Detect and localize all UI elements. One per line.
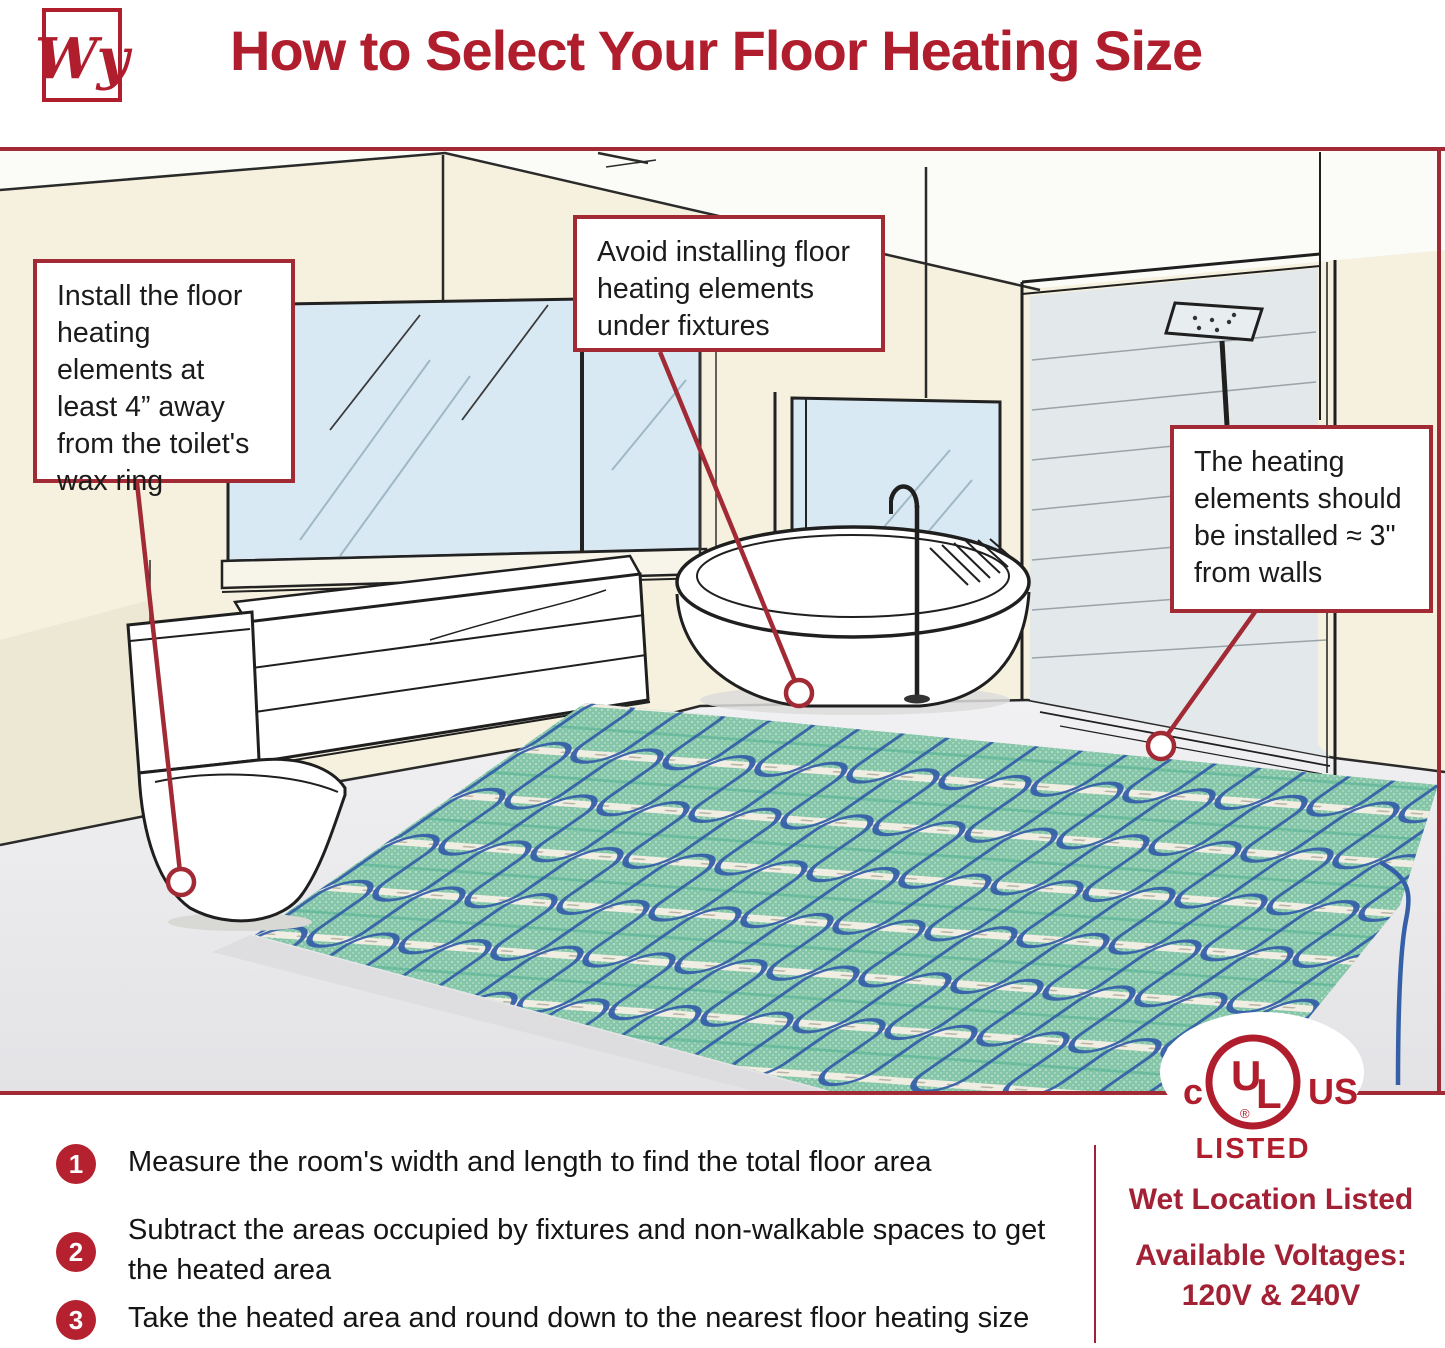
callout-avoid-fixtures: Avoid installing floor heating elements … — [573, 215, 885, 352]
voltages-label: Available Voltages: — [1100, 1239, 1442, 1273]
step-row-2: 2 Subtract the areas occupied by fixture… — [56, 1210, 1056, 1290]
wet-location-label: Wet Location Listed — [1100, 1183, 1442, 1217]
step-row-1: 1 Measure the room's width and length to… — [56, 1142, 1056, 1184]
svg-text:c: c — [1183, 1071, 1203, 1112]
step-3-number-badge: 3 — [56, 1300, 96, 1340]
ul-certification-mark: U L ® c US LISTED — [1160, 1012, 1364, 1165]
step-2-text: Subtract the areas occupied by fixtures … — [128, 1210, 1056, 1290]
step-1-number-badge: 1 — [56, 1144, 96, 1184]
leader-dot-tub — [786, 680, 812, 706]
svg-text:®: ® — [1240, 1106, 1250, 1121]
brand-logo-text: Wy — [35, 31, 129, 87]
leader-dot-wall — [1148, 733, 1174, 759]
vertical-divider — [1094, 1145, 1096, 1343]
step-1-text: Measure the room's width and length to f… — [128, 1142, 932, 1182]
step-row-3: 3 Take the heated area and round down to… — [56, 1298, 1056, 1340]
step-3-text: Take the heated area and round down to t… — [128, 1298, 1029, 1338]
page-title: How to Select Your Floor Heating Size — [230, 18, 1290, 83]
svg-text:US: US — [1308, 1071, 1358, 1112]
svg-text:L: L — [1256, 1070, 1282, 1117]
callout-distance-from-walls: The heating elements should be installed… — [1170, 425, 1433, 613]
callout-toilet-wax-ring: Install the floor heating elements at le… — [33, 259, 295, 483]
step-2-number-badge: 2 — [56, 1232, 96, 1272]
leader-dot-toilet — [168, 869, 194, 895]
voltages-value: 120V & 240V — [1100, 1279, 1442, 1313]
certification-text-block: Wet Location Listed Available Voltages: … — [1100, 1183, 1442, 1313]
floor-heating-infographic: { "page": {"width": 1445, "height": 1348… — [0, 0, 1445, 1348]
svg-text:LISTED: LISTED — [1195, 1133, 1310, 1165]
brand-logo: Wy — [42, 8, 122, 102]
